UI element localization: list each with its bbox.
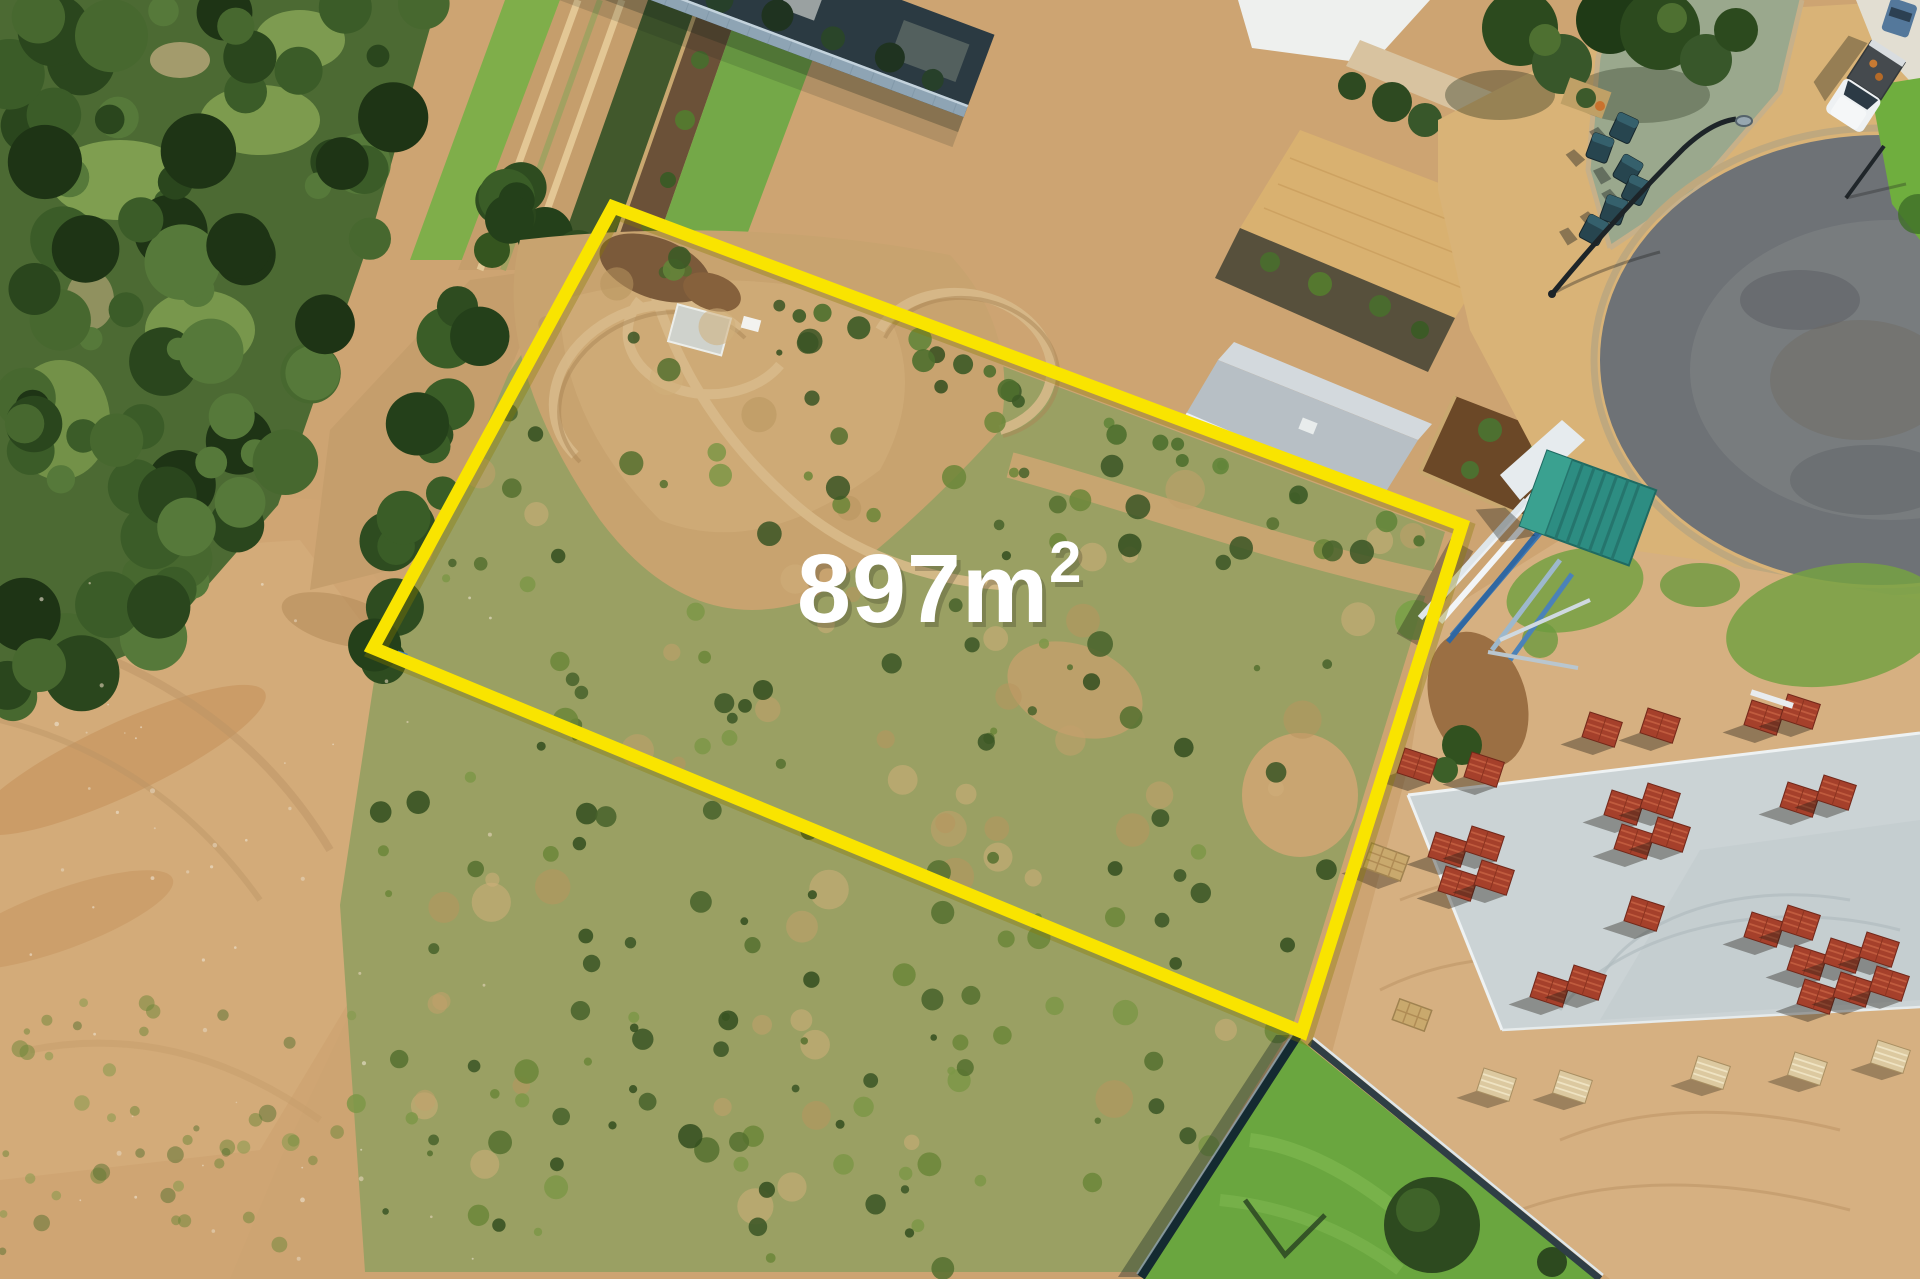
- area-label: 897m2 897m2: [797, 530, 1086, 648]
- aerial-photo: 897m2 897m2: [0, 0, 1920, 1279]
- lot-sand-patch-right: [1242, 733, 1358, 857]
- area-sup-text: 2: [1049, 530, 1082, 595]
- svg-text:897m2: 897m2: [797, 530, 1082, 643]
- aerial-photo-canvas: 897m2 897m2: [0, 0, 1920, 1279]
- area-main-text: 897m: [797, 534, 1049, 643]
